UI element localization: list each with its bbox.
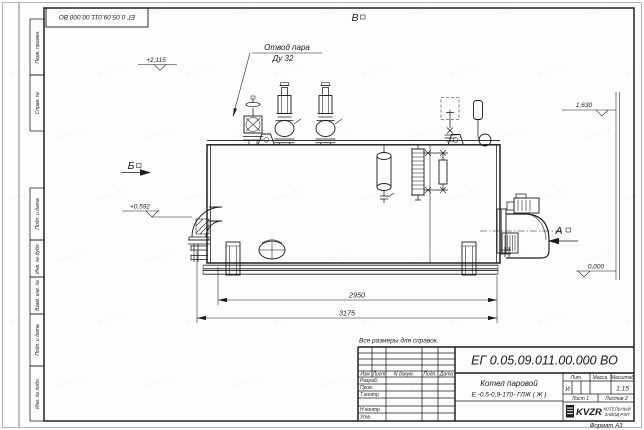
drawing-sheet: kvzr.rukvzr.rukvzr.rukvzr.rukvzr.rukvzr.… xyxy=(0,0,644,430)
signature-rows: Разраб. Пров. Т.контр Н.контр Утв. xyxy=(360,378,380,420)
manhole xyxy=(259,240,285,259)
header-scale: Масштаб xyxy=(611,375,635,381)
company-name-line2: ЗАВОД РЭП xyxy=(605,412,631,417)
flue-elbow xyxy=(188,207,222,244)
side-label: Перв. примен. xyxy=(35,30,41,63)
dimensions: 2950 3175 xyxy=(197,251,497,323)
signature-headers: Изм Лист N докум. Подп. Дата xyxy=(360,372,453,378)
company-name-line1: КОТЕЛЬНЫЙ xyxy=(603,407,631,412)
product-name-line1: Котел паровой xyxy=(480,379,538,388)
side-label: Подп. и дата xyxy=(35,198,41,230)
side-label: Инв. № подл. xyxy=(35,378,41,409)
steam-outlet-valve xyxy=(243,96,263,145)
level-gauge xyxy=(411,145,448,200)
steam-outlet-label-1: Отвод пара xyxy=(264,43,310,52)
view-markers: Б А В xyxy=(121,12,578,244)
title-block: ЕГ 0.05.09.011.00.000 ВО Котел паровой Е… xyxy=(358,337,634,422)
top-doc-number: ЕГ 0.05.09.011.00.000 ВО xyxy=(59,13,135,20)
svg-text:Н.контр: Н.контр xyxy=(360,407,380,413)
support-post-right xyxy=(462,242,476,275)
elevation-top: +2,115 xyxy=(138,57,177,71)
svg-text:N докум.: N докум. xyxy=(394,372,414,378)
svg-text:Утв.: Утв. xyxy=(360,415,371,421)
reference-note: Все размеры для справок. xyxy=(359,337,439,345)
header-lit: Лит. xyxy=(570,375,583,381)
drawing-svg: ЕГ 0.05.09.011.00.000 ВО Перв. примен. С… xyxy=(0,0,644,430)
dimension-overall-length: 3175 xyxy=(339,309,356,318)
left-nozzles xyxy=(191,244,208,263)
product-name-line2: Е -0,5-0,9-170- ГЛЖ ( Ж ) xyxy=(472,392,547,399)
doc-number: ЕГ 0.05.09.011.00.000 ВО xyxy=(471,354,618,368)
level-sensor xyxy=(474,101,492,147)
header-mass: Масса xyxy=(593,375,608,381)
elevation-zero: 0,000 xyxy=(576,264,616,278)
svg-text:Подп.: Подп. xyxy=(423,372,436,378)
scale-value: 1:15 xyxy=(616,386,629,393)
svg-text:Лист: Лист xyxy=(372,372,386,378)
skid-frame xyxy=(203,265,498,274)
lit-value: И xyxy=(565,387,570,393)
sheets-total: Листов 2 xyxy=(604,396,628,402)
side-label: Подп. и дата xyxy=(35,324,41,356)
svg-text:Пров.: Пров. xyxy=(360,385,373,391)
side-label: Справ. № xyxy=(35,91,41,114)
leader-steam-outlet: Отвод пара Ду 32 xyxy=(233,43,322,117)
company-cell: KVZR КОТЕЛЬНЫЙ ЗАВОД РЭП xyxy=(566,405,631,418)
support-post-left xyxy=(226,242,240,275)
svg-text:1,630: 1,630 xyxy=(576,102,593,109)
boiler-drawing xyxy=(188,83,620,281)
svg-text:0,000: 0,000 xyxy=(588,264,605,271)
frame-side-cells: Перв. примен. Справ. № Подп. и дата Инв.… xyxy=(30,19,44,421)
svg-text:Разраб.: Разраб. xyxy=(360,378,378,384)
svg-text:Изм: Изм xyxy=(360,372,370,378)
view-marker-v: В xyxy=(351,12,365,24)
side-label: Взам. инв. № xyxy=(35,279,41,311)
sheet-number: Лист 1 xyxy=(571,396,589,402)
elevation-right-top: 1,630 xyxy=(562,102,616,116)
view-marker-a: А xyxy=(548,225,578,244)
svg-text:А: А xyxy=(554,225,562,237)
side-label: Инв. № дубл. xyxy=(35,243,41,274)
separator-vessel xyxy=(377,145,394,203)
format-label: Формат А3 xyxy=(590,424,623,430)
lifting-lug-left xyxy=(258,134,275,145)
elevation-left-mid: +0,592 xyxy=(122,204,192,218)
svg-text:+0,592: +0,592 xyxy=(130,204,150,211)
steam-outlet-label-2: Ду 32 xyxy=(272,54,294,63)
svg-text:Дата: Дата xyxy=(439,372,453,378)
svg-text:+2,115: +2,115 xyxy=(146,57,166,64)
svg-text:В: В xyxy=(351,12,358,24)
boiler-shell xyxy=(207,141,500,263)
view-marker-b: Б xyxy=(121,160,151,176)
safety-valve xyxy=(275,83,302,146)
svg-text:Т.контр: Т.контр xyxy=(360,392,379,398)
reference-line xyxy=(616,92,620,280)
company-logo-text: KVZR xyxy=(576,407,602,418)
svg-text:Б: Б xyxy=(128,160,135,172)
dimension-inner-length: 2950 xyxy=(348,291,365,300)
